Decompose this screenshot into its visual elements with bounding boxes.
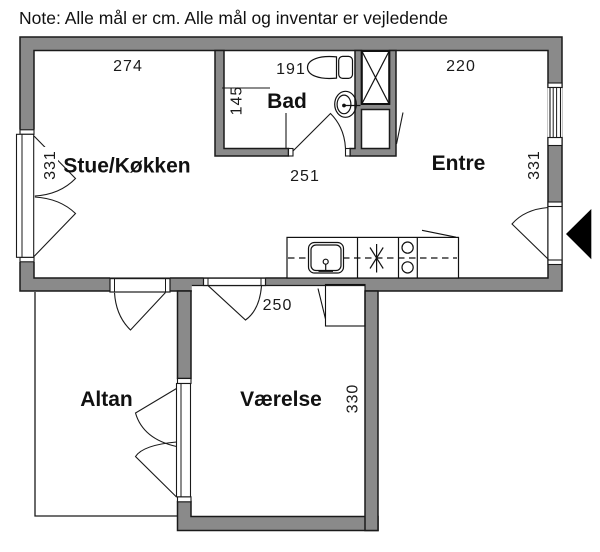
svg-text:Værelse: Værelse (240, 388, 322, 411)
svg-text:274: 274 (113, 58, 143, 75)
svg-text:331: 331 (526, 150, 543, 180)
svg-text:250: 250 (263, 297, 293, 314)
svg-text:145: 145 (229, 86, 246, 116)
svg-text:Entre: Entre (432, 152, 486, 175)
svg-text:Note: Alle mål er cm. Alle mål: Note: Alle mål er cm. Alle mål og invent… (19, 8, 448, 28)
svg-text:Stue/Køkken: Stue/Køkken (63, 155, 190, 178)
svg-text:Altan: Altan (80, 388, 133, 411)
svg-text:191: 191 (276, 61, 306, 78)
svg-text:Bad: Bad (267, 90, 307, 113)
svg-text:330: 330 (345, 384, 362, 414)
svg-text:220: 220 (446, 58, 476, 75)
svg-text:331: 331 (42, 150, 59, 180)
svg-text:251: 251 (290, 168, 320, 185)
